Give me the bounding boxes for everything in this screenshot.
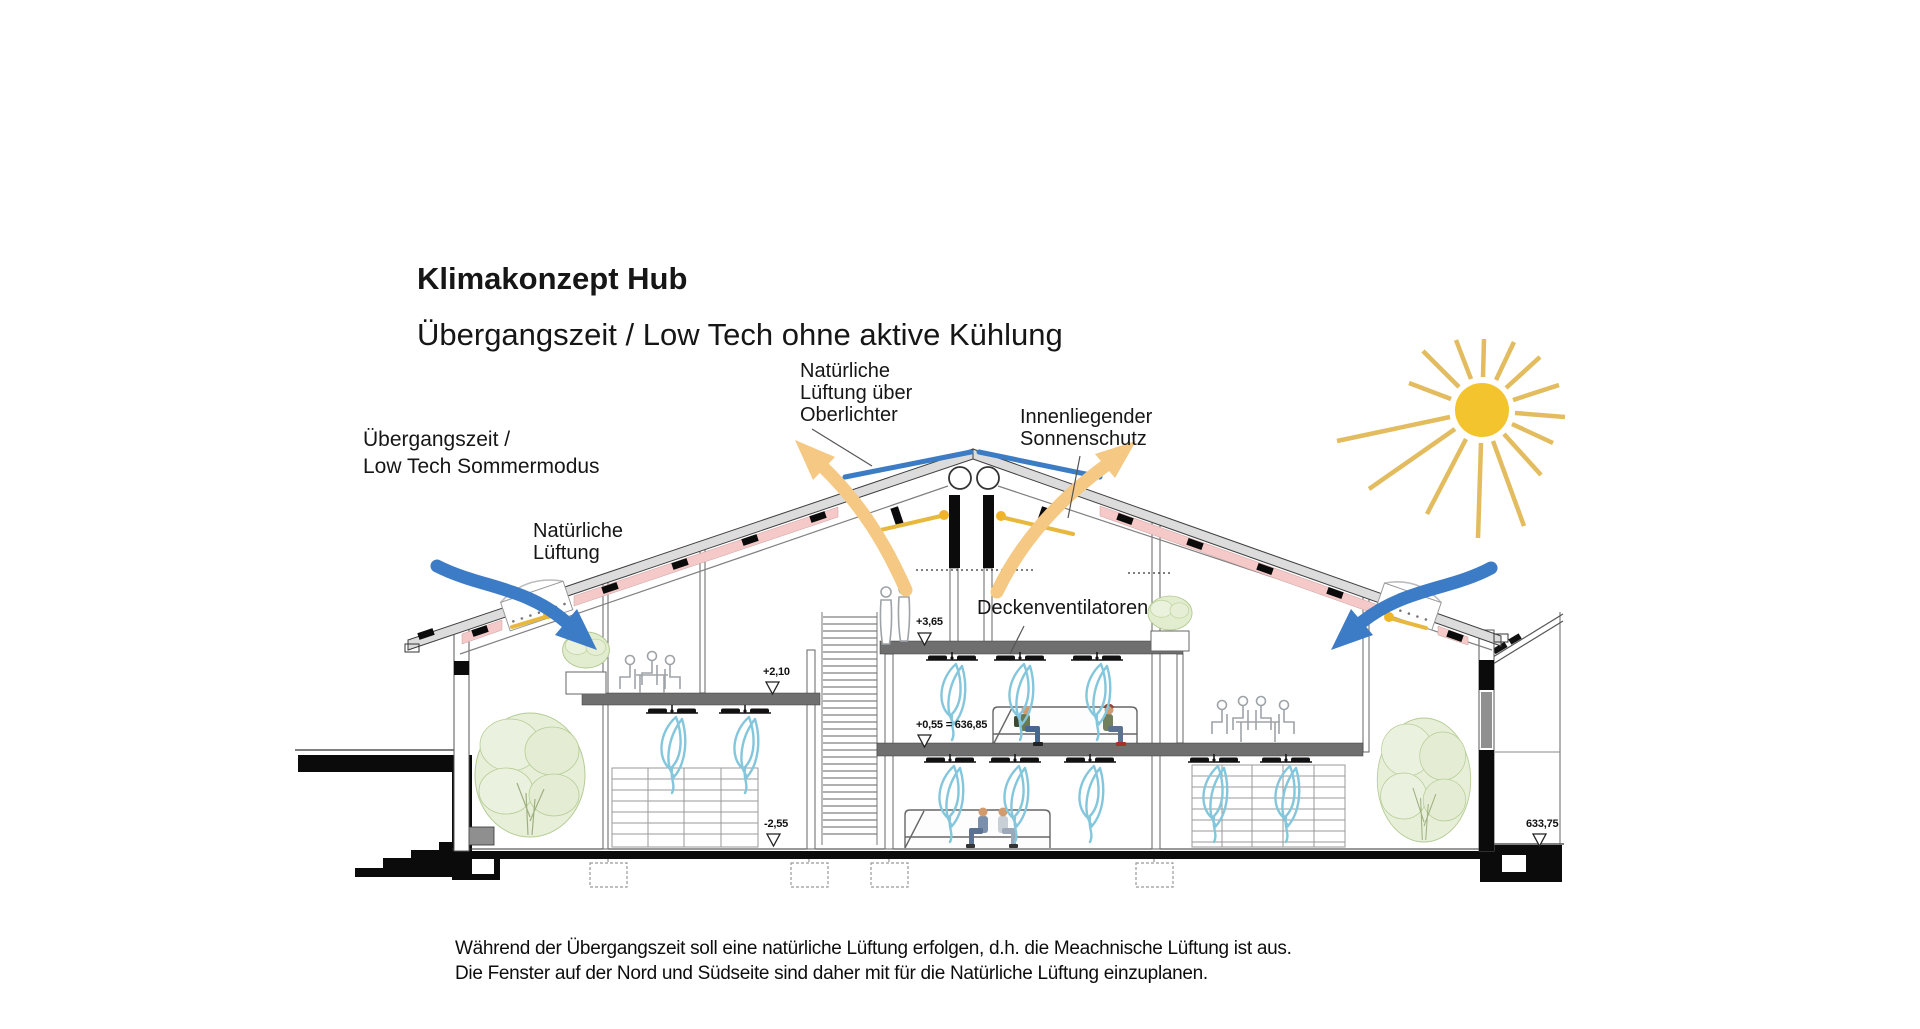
sun-icon <box>1337 339 1565 538</box>
climate-concept-page: Klimakonzept Hub Übergangszeit / Low Tec… <box>0 0 1920 1029</box>
label-skylight-ventilation: Natürliche Lüftung über Oberlichter <box>800 360 912 426</box>
ridge-shaft-right <box>983 495 994 568</box>
page-subtitle: Übergangszeit / Low Tech ohne aktive Küh… <box>417 315 1063 355</box>
building-section-drawing <box>0 0 1920 1029</box>
bench-box <box>467 827 494 845</box>
indoor-tree-left <box>475 713 585 837</box>
page-title: Klimakonzept Hub <box>417 261 1063 297</box>
label-summer-mode: Übergangszeit / Low Tech Sommermodus <box>363 426 600 480</box>
indoor-tree-right <box>1377 718 1471 842</box>
people-group-mezzanine <box>620 652 680 694</box>
people-group-right-table <box>1212 697 1294 743</box>
left-wall <box>454 625 469 851</box>
staircase <box>822 612 877 845</box>
elevation-marker-365: +3,65 <box>916 616 943 628</box>
elevation-marker-210: +2,10 <box>763 666 790 678</box>
right-wall <box>1479 630 1494 851</box>
adjacent-building-right <box>1492 614 1563 752</box>
solar-gain-arrow-left <box>795 440 906 590</box>
mezzanine-slab <box>582 693 820 705</box>
label-natural-ventilation: Natürliche Lüftung <box>533 520 623 564</box>
title-block: Klimakonzept Hub Übergangszeit / Low Tec… <box>417 243 1063 373</box>
elevation-marker-63375: 633,75 <box>1526 818 1558 830</box>
shelving-left <box>612 768 758 847</box>
elevation-marker-minus255: -2,55 <box>764 818 788 830</box>
footnote-text: Während der Übergangszeit soll eine natü… <box>455 936 1292 986</box>
label-ceiling-fans: Deckenventilatoren <box>977 597 1148 619</box>
ridge-shaft-left <box>949 495 960 568</box>
ridge-vent-circle-left <box>949 467 971 489</box>
elevation-marker-055: +0,55 = 636,85 <box>916 719 987 731</box>
foundation-pads <box>590 859 1173 887</box>
planter-upper <box>1148 596 1192 651</box>
ground-slab <box>452 851 1495 859</box>
label-interior-sun-protection: Innenliegender Sonnenschutz <box>1020 406 1152 450</box>
ridge-vent-circle-right <box>977 467 999 489</box>
